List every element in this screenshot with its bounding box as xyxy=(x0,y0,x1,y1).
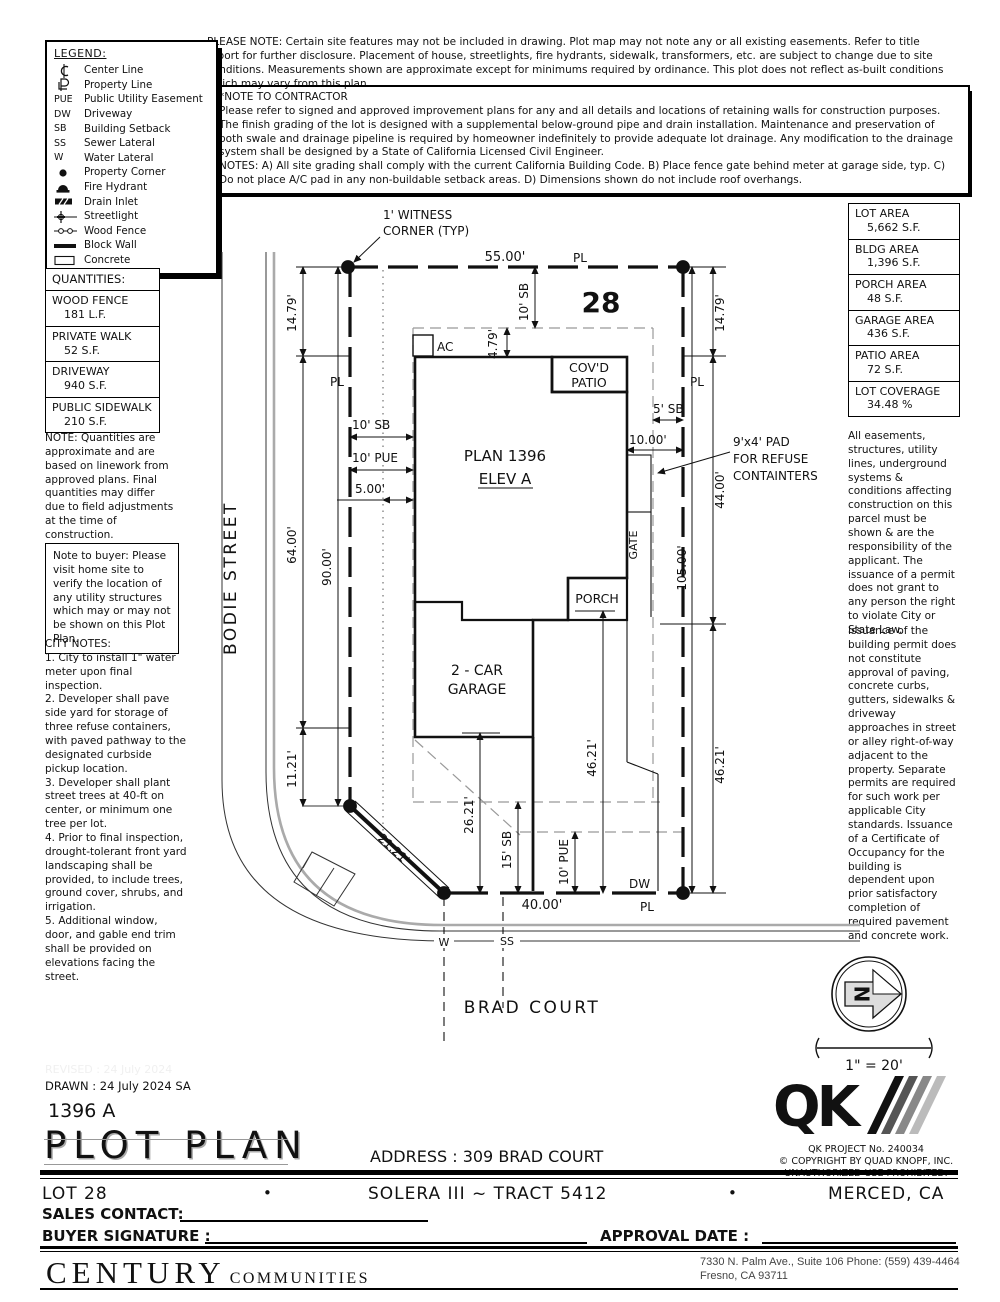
legend-box: LEGEND: Center Line Property Line PUEPub… xyxy=(45,40,218,275)
utility-laterals xyxy=(434,897,520,1045)
svg-text:COV'D: COV'D xyxy=(569,360,609,375)
area-row: PORCH AREA48 S.F. xyxy=(849,275,959,311)
legend-label: Property Corner xyxy=(84,166,165,178)
svg-text:10' PUE: 10' PUE xyxy=(352,451,398,465)
brand-century: CENTURY xyxy=(46,1255,226,1290)
svg-text:CONTAINTERS: CONTAINTERS xyxy=(733,469,818,483)
approval-date-label: APPROVAL DATE : xyxy=(600,1227,749,1245)
legend-label: Drain Inlet xyxy=(84,196,138,208)
fire-hydrant-icon xyxy=(54,180,84,195)
svg-text:1' WITNESS: 1' WITNESS xyxy=(383,208,452,222)
svg-text:105.00': 105.00' xyxy=(675,545,689,590)
drawn-date: DRAWN : 24 July 2024 SA xyxy=(45,1079,191,1093)
divider xyxy=(40,1288,958,1290)
legend-label: Public Utility Easement xyxy=(84,93,203,105)
svg-text:PATIO: PATIO xyxy=(571,375,607,390)
svg-text:5' SB: 5' SB xyxy=(653,402,684,416)
divider xyxy=(40,1170,958,1175)
svg-text:14.79': 14.79' xyxy=(713,294,727,332)
concrete-icon xyxy=(54,253,84,268)
brand-communities: COMMUNITIES xyxy=(230,1270,370,1287)
block-wall-icon xyxy=(54,238,84,253)
north-arrow: N 1" = 20' xyxy=(805,948,960,1076)
svg-text:10.00': 10.00' xyxy=(629,433,667,447)
area-row: LOT COVERAGE34.48 % xyxy=(849,382,959,418)
svg-text:N: N xyxy=(850,986,874,1003)
svg-text:9'x4' PAD: 9'x4' PAD xyxy=(733,435,790,449)
legend-label: Sewer Lateral xyxy=(84,137,155,149)
lot-label: LOT 28 xyxy=(42,1184,108,1204)
plot-plan-drawing: 1' WITNESS CORNER (TYP) 55.00' PL PL PL … xyxy=(200,195,860,1065)
legend-title: LEGEND: xyxy=(54,47,210,60)
house-footprint xyxy=(413,335,658,891)
separator-dot: • xyxy=(728,1184,737,1202)
drain-inlet-icon xyxy=(54,194,84,209)
svg-text:15' SB: 15' SB xyxy=(500,831,514,869)
buyer-signature-field[interactable] xyxy=(205,1228,587,1244)
permit-note: Issuance of the building permit does not… xyxy=(848,625,960,944)
easements-note: All easements, structures, utility lines… xyxy=(848,430,960,638)
svg-text:10' PUE: 10' PUE xyxy=(557,839,571,885)
qk-logo-block: QK QK PROJECT No. 240034 © COPYRIGHT BY … xyxy=(768,1068,964,1180)
centerline-icon xyxy=(54,63,84,78)
separator-dot: • xyxy=(263,1184,272,1202)
svg-text:46.21': 46.21' xyxy=(713,746,727,784)
legend-label: Building Setback xyxy=(84,123,170,135)
divider xyxy=(40,1246,958,1249)
legend-label: Fire Hydrant xyxy=(84,181,147,193)
legend-label: Center Line xyxy=(84,64,143,76)
quantity-row: WOOD FENCE181 L.F. xyxy=(46,291,159,327)
svg-text:90.00': 90.00' xyxy=(320,548,334,586)
qk-project-no: QK PROJECT No. 240034 xyxy=(768,1144,964,1156)
quantity-row: PUBLIC SIDEWALK210 S.F. xyxy=(46,398,159,434)
svg-text:SS: SS xyxy=(500,935,514,948)
title-construction-line xyxy=(44,1164,288,1165)
area-row: GARAGE AREA436 S.F. xyxy=(849,311,959,347)
property-corner-icon xyxy=(54,165,84,180)
refuse-pad xyxy=(627,455,651,512)
sheet-title: PLOT PLAN xyxy=(44,1124,309,1167)
svg-text:10' SB: 10' SB xyxy=(517,283,531,321)
svg-text:4.79': 4.79' xyxy=(486,329,500,359)
revised-date: REVISED : 24 July 2024 xyxy=(45,1063,172,1076)
divider xyxy=(40,1251,958,1252)
svg-text:ELEV A: ELEV A xyxy=(479,470,532,488)
setback-lines xyxy=(413,328,683,835)
plot-plan-page: PLEASE NOTE: Certain site features may n… xyxy=(0,0,1000,1302)
brand-logo: CENTURY COMMUNITIES xyxy=(46,1255,370,1291)
quantities-note: NOTE: Quantities are approximate and are… xyxy=(45,432,175,543)
legend-label: Wood Fence xyxy=(84,225,146,237)
dimension-lines xyxy=(296,237,730,893)
svg-text:PL: PL xyxy=(640,900,654,914)
svg-text:11.21': 11.21' xyxy=(285,750,299,788)
area-table: LOT AREA5,662 S.F. BLDG AREA1,396 S.F. P… xyxy=(848,203,960,417)
svg-text:26.21': 26.21' xyxy=(462,796,476,834)
svg-text:AC: AC xyxy=(437,340,453,354)
approval-date-field[interactable] xyxy=(762,1228,956,1244)
sales-contact-label: SALES CONTACT: xyxy=(42,1205,184,1223)
svg-text:FOR REFUSE: FOR REFUSE xyxy=(733,452,808,466)
svg-text:GATE: GATE xyxy=(627,531,640,560)
contractor-note-box: *NOTE TO CONTRACTOR Please refer to sign… xyxy=(210,85,970,195)
svg-text:55.00': 55.00' xyxy=(485,250,526,265)
svg-text:W: W xyxy=(439,936,450,949)
pue-symbol: PUE xyxy=(54,94,84,105)
legend-label: Concrete xyxy=(84,254,130,266)
plan-code: 1396 A xyxy=(48,1100,115,1122)
svg-text:PL: PL xyxy=(690,375,704,389)
svg-text:5.00': 5.00' xyxy=(355,482,385,496)
qk-copyright: © COPYRIGHT BY QUAD KNOPF, INC. xyxy=(768,1156,964,1168)
legend-label: Driveway xyxy=(84,108,132,120)
svg-text:PORCH: PORCH xyxy=(575,591,619,606)
area-row: PATIO AREA72 S.F. xyxy=(849,346,959,382)
qk-logo-icon: QK xyxy=(771,1068,961,1140)
please-note: PLEASE NOTE: Certain site features may n… xyxy=(207,36,955,91)
city-notes: CITY NOTES: 1. City to install 1" water … xyxy=(45,638,187,984)
svg-text:46.21': 46.21' xyxy=(585,739,599,777)
svg-text:28: 28 xyxy=(582,286,621,319)
ss-symbol: SS xyxy=(54,138,84,149)
area-row: LOT AREA5,662 S.F. xyxy=(849,204,959,240)
legend-label: Block Wall xyxy=(84,239,137,251)
svg-text:2 - CAR: 2 - CAR xyxy=(451,663,503,679)
scale-bar xyxy=(816,1038,932,1058)
svg-text:QK: QK xyxy=(773,1075,863,1140)
svg-text:GARAGE: GARAGE xyxy=(448,682,507,698)
quantity-row: DRIVEWAY940 S.F. xyxy=(46,362,159,398)
sales-contact-field[interactable] xyxy=(180,1206,428,1222)
streetlight-icon xyxy=(54,209,84,224)
title-construction-line xyxy=(44,1139,288,1140)
area-row: BLDG AREA1,396 S.F. xyxy=(849,240,959,276)
w-symbol: W xyxy=(54,152,84,163)
office-address: 7330 N. Palm Ave., Suite 106 Phone: (559… xyxy=(700,1255,960,1284)
quantities-table: QUANTITIES: WOOD FENCE181 L.F. PRIVATE W… xyxy=(45,268,160,433)
legend-label: Streetlight xyxy=(84,210,138,222)
property-line-icon xyxy=(54,77,84,92)
tract-label: SOLERA III ~ TRACT 5412 xyxy=(368,1184,607,1204)
svg-text:DW: DW xyxy=(629,877,650,891)
quantities-title: QUANTITIES: xyxy=(46,269,159,291)
svg-text:BRAD COURT: BRAD COURT xyxy=(464,998,601,1018)
divider xyxy=(40,1178,958,1179)
address: ADDRESS : 309 BRAD COURT xyxy=(370,1147,603,1166)
wood-fence-icon xyxy=(54,223,84,238)
svg-text:44.00': 44.00' xyxy=(713,471,727,509)
svg-text:10' SB: 10' SB xyxy=(352,418,390,432)
street-lines xyxy=(222,252,860,941)
plot-labels: 1' WITNESS CORNER (TYP) 55.00' PL PL PL … xyxy=(221,208,818,1018)
legend-label: Water Lateral xyxy=(84,152,154,164)
svg-text:PL: PL xyxy=(330,375,344,389)
legend-label: Property Line xyxy=(84,79,152,91)
ac-pad xyxy=(413,335,433,356)
svg-text:PL: PL xyxy=(573,251,587,265)
svg-text:BODIE STREET: BODIE STREET xyxy=(221,501,241,655)
dw-symbol: DW xyxy=(54,109,84,120)
svg-text:CORNER (TYP): CORNER (TYP) xyxy=(383,224,469,238)
quantity-row: PRIVATE WALK52 S.F. xyxy=(46,327,159,363)
city-label: MERCED, CA xyxy=(828,1184,944,1204)
buyer-signature-label: BUYER SIGNATURE : xyxy=(42,1227,211,1245)
sb-symbol: SB xyxy=(54,123,84,134)
svg-text:64.00': 64.00' xyxy=(285,526,299,564)
svg-text:PLAN 1396: PLAN 1396 xyxy=(464,447,546,465)
svg-text:14.79': 14.79' xyxy=(285,294,299,332)
svg-text:40.00': 40.00' xyxy=(522,898,563,913)
